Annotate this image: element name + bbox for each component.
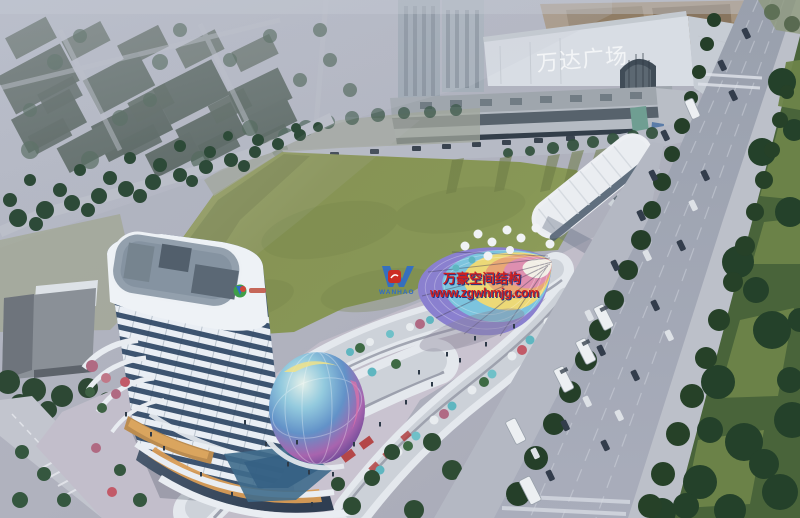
svg-text:www.zgwhmjg.com: www.zgwhmjg.com: [429, 286, 539, 300]
svg-text:WANHAO: WANHAO: [379, 289, 415, 296]
svg-text:万豪空间结构: 万豪空间结构: [442, 271, 521, 286]
